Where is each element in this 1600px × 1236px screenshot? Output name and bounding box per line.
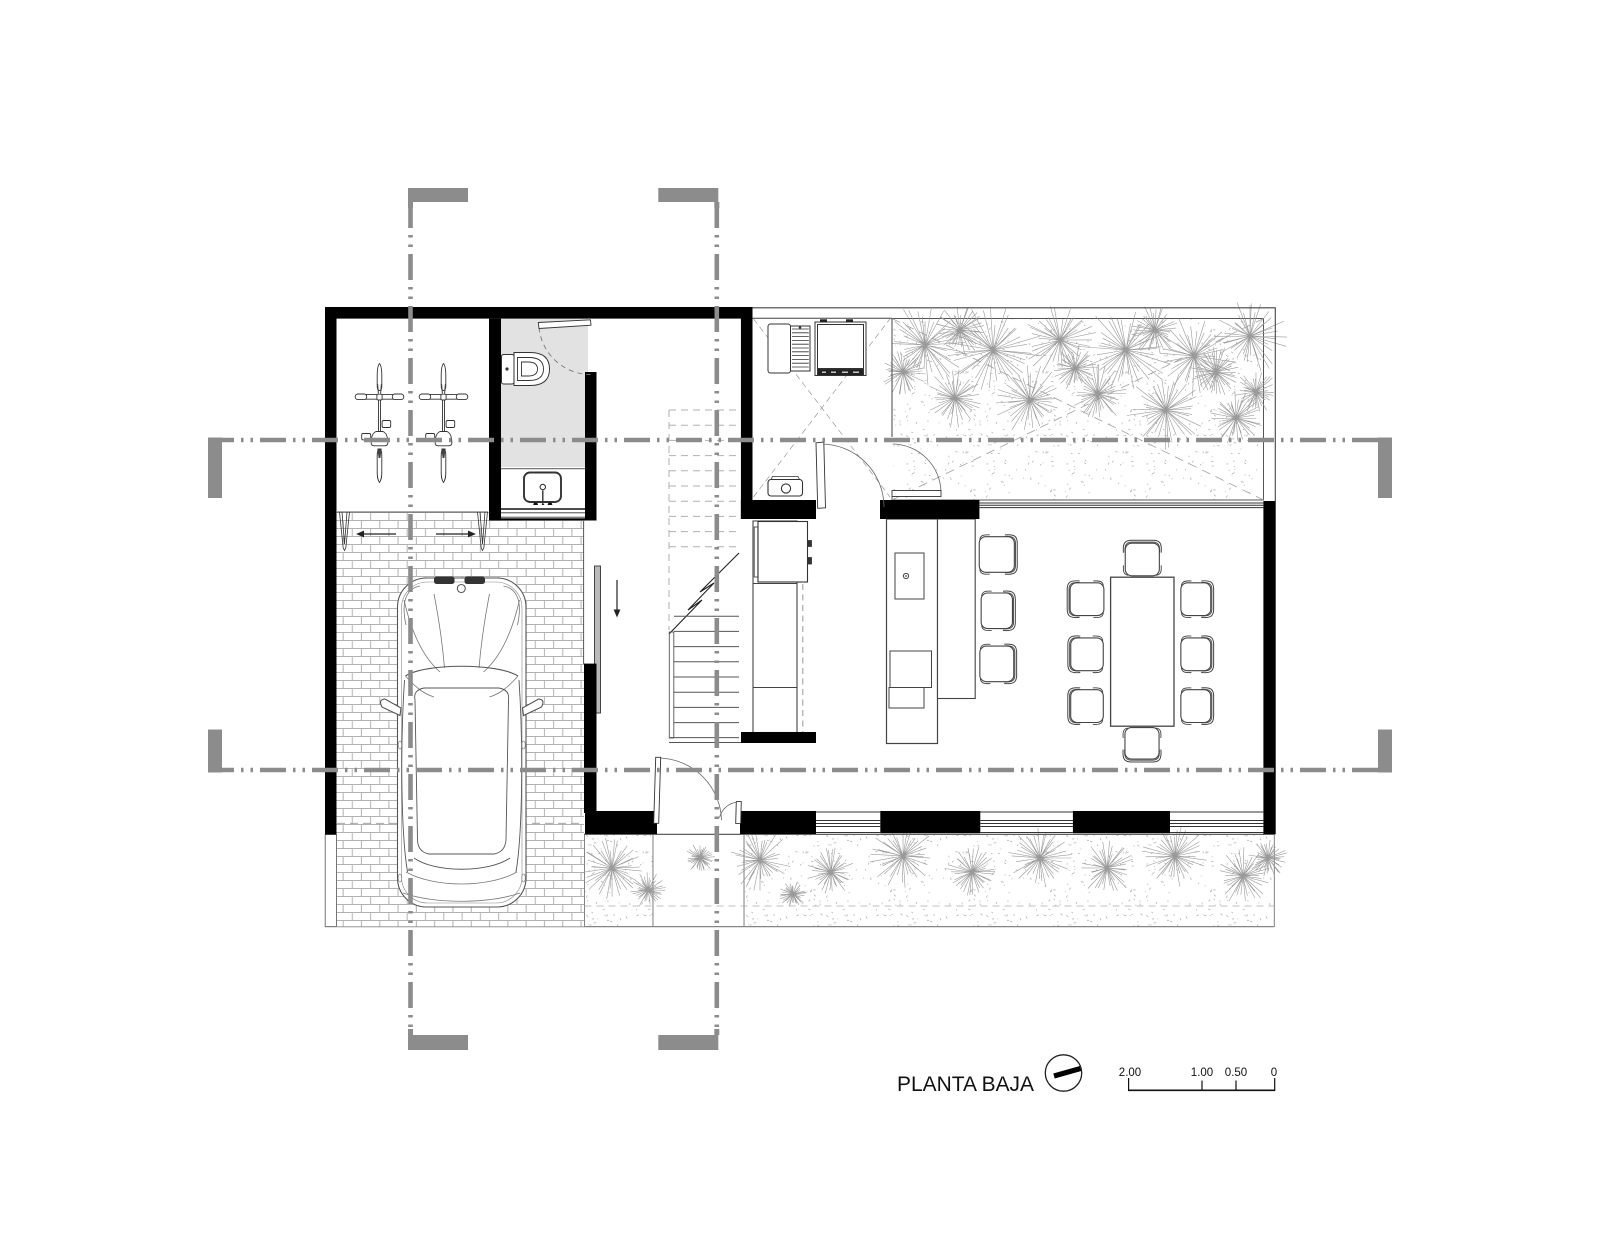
svg-text:0.50: 0.50 bbox=[1225, 1067, 1247, 1079]
svg-text:PLANTA BAJA: PLANTA BAJA bbox=[897, 1072, 1035, 1096]
svg-text:0: 0 bbox=[1271, 1067, 1277, 1079]
svg-text:2.00: 2.00 bbox=[1119, 1067, 1141, 1079]
svg-text:1.00: 1.00 bbox=[1191, 1067, 1213, 1079]
